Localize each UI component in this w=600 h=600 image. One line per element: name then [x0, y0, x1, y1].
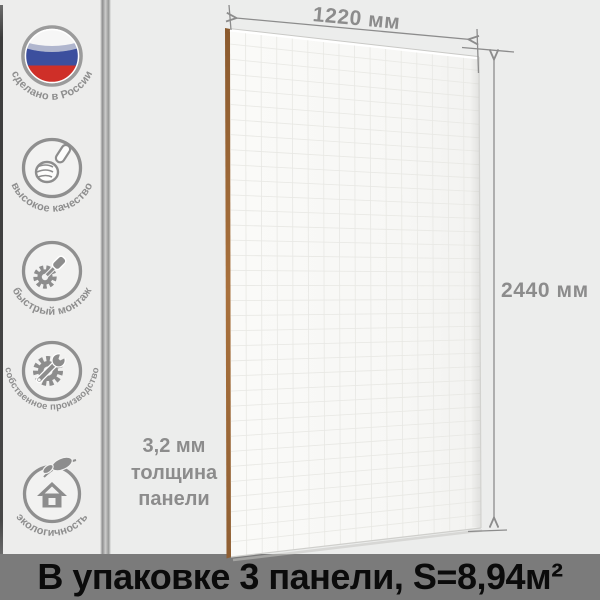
- thickness-line-1: 3,2 мм: [114, 433, 234, 460]
- thickness-line-2: толщина: [114, 460, 234, 487]
- height-dimension-label: 2440 мм: [501, 279, 589, 302]
- panel-illustration: 1220 мм 2440 мм: [0, 0, 600, 600]
- product-image: В упаковке 3 панели, S=8,94м² сделано в …: [0, 0, 600, 600]
- width-dimension-label: 1220 мм: [312, 3, 402, 34]
- thickness-line-3: панели: [114, 486, 234, 513]
- thickness-label: 3,2 мм толщина панели: [114, 433, 234, 513]
